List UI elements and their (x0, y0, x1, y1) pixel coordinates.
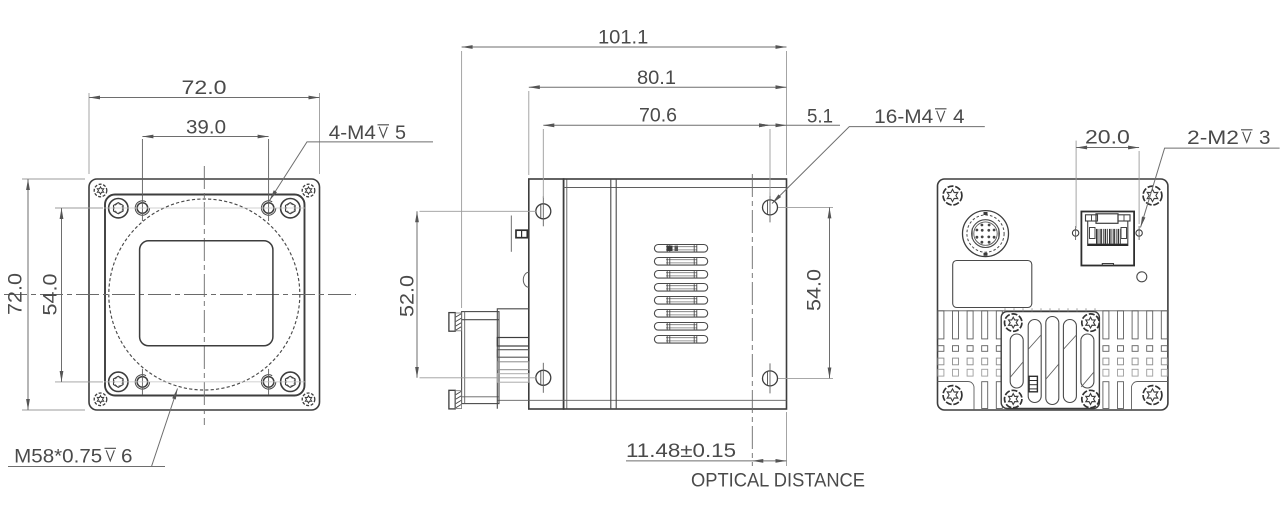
svg-text:M58*0.75: M58*0.75 (14, 447, 102, 468)
svg-text:5.1: 5.1 (807, 107, 833, 128)
svg-text:3: 3 (1259, 128, 1271, 149)
svg-text:80.1: 80.1 (637, 68, 676, 89)
svg-text:4: 4 (953, 107, 965, 128)
svg-text:OPTICAL DISTANCE: OPTICAL DISTANCE (691, 471, 865, 492)
svg-text:16-M4: 16-M4 (874, 107, 933, 128)
svg-text:2-M2: 2-M2 (1187, 128, 1239, 149)
svg-text:72.0: 72.0 (182, 78, 227, 99)
svg-text:52.0: 52.0 (398, 275, 419, 317)
svg-text:5: 5 (395, 123, 406, 144)
svg-text:101.1: 101.1 (598, 28, 648, 49)
svg-text:54.0: 54.0 (805, 269, 826, 311)
svg-text:54.0: 54.0 (41, 274, 62, 316)
svg-text:11.48±0.15: 11.48±0.15 (626, 441, 736, 462)
svg-text:39.0: 39.0 (186, 118, 226, 139)
svg-text:70.6: 70.6 (639, 106, 677, 127)
svg-text:72.0: 72.0 (6, 273, 27, 315)
svg-text:6: 6 (121, 447, 133, 468)
svg-text:20.0: 20.0 (1085, 128, 1130, 149)
svg-text:4-M4: 4-M4 (329, 123, 376, 144)
